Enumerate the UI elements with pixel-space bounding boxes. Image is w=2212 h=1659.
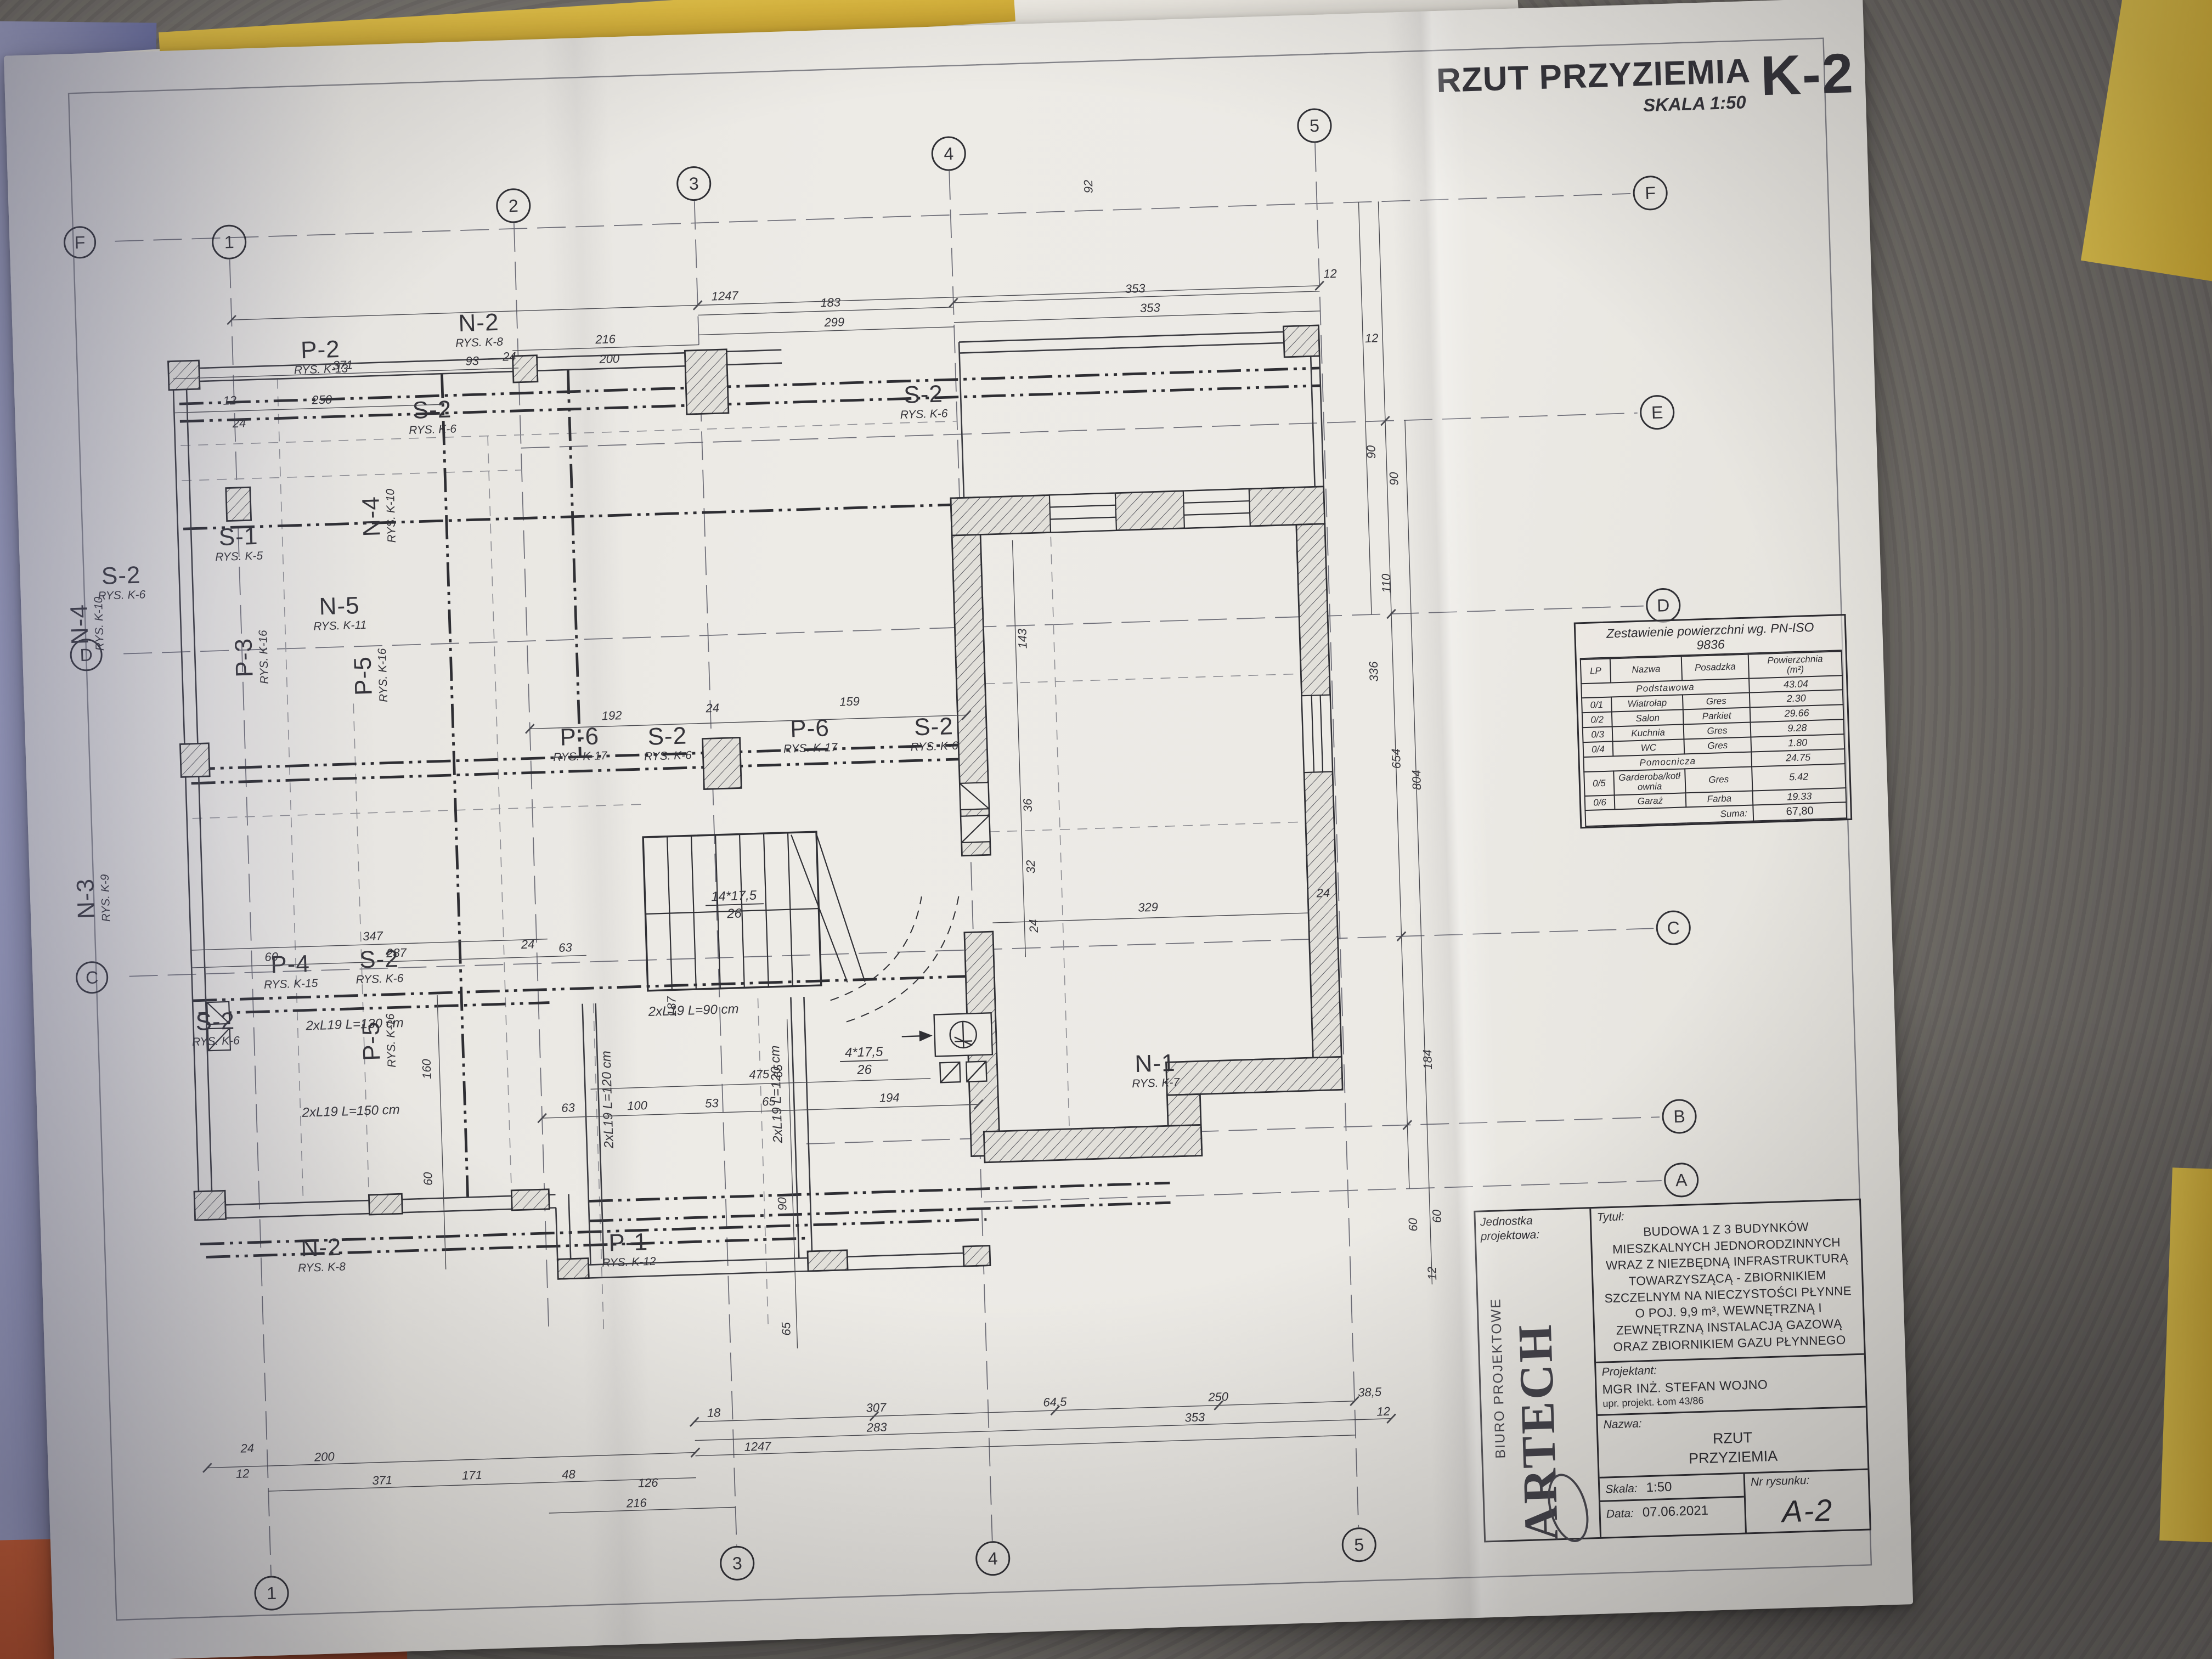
walls-hatched: [168, 325, 1347, 1290]
svg-text:353: 353: [1184, 1410, 1205, 1424]
svg-text:F: F: [74, 232, 86, 252]
svg-text:475: 475: [749, 1067, 770, 1081]
svg-text:4: 4: [988, 1548, 998, 1568]
svg-text:RYS. K-6: RYS. K-6: [644, 749, 692, 763]
title-block-nr-cell: Nr rysunku: A-2: [1745, 1470, 1870, 1532]
svg-text:1247: 1247: [744, 1439, 771, 1454]
svg-text:48: 48: [562, 1467, 576, 1481]
svg-text:183: 183: [820, 295, 841, 309]
lintel-labels: 2xL19 L=130 cm 2xL19 L=90 cm 2xL19 L=150…: [298, 1000, 786, 1159]
jednostka-label: Jednostka projektowa:: [1475, 1209, 1590, 1248]
title-block: Jednostka projektowa: BIURO PROJEKTOWE A…: [1474, 1199, 1871, 1543]
svg-text:18: 18: [707, 1406, 721, 1420]
svg-text:353: 353: [1140, 301, 1161, 315]
svg-text:250: 250: [311, 392, 332, 407]
svg-text:D: D: [80, 645, 93, 665]
svg-text:12: 12: [1365, 331, 1379, 346]
svg-text:24: 24: [240, 1441, 254, 1455]
svg-text:63: 63: [561, 1101, 575, 1115]
svg-text:654: 654: [1389, 748, 1403, 769]
svg-text:24: 24: [1026, 919, 1041, 933]
svg-text:60: 60: [421, 1171, 435, 1186]
svg-text:143: 143: [1015, 628, 1030, 649]
svg-text:RYS. K-6: RYS. K-6: [910, 740, 958, 754]
svg-text:126: 126: [637, 1476, 658, 1490]
vent-chimney-symbol: [901, 1013, 994, 1084]
svg-text:63: 63: [558, 940, 573, 955]
svg-text:4: 4: [944, 144, 954, 164]
svg-text:RYS. K-17: RYS. K-17: [553, 749, 608, 764]
svg-text:371: 371: [332, 358, 353, 372]
svg-text:160: 160: [420, 1058, 434, 1079]
svg-text:347: 347: [363, 929, 383, 943]
tytul-text: BUDOWA 1 Z 3 BUDYNKÓW MIESZKALNYCH JEDNO…: [1597, 1217, 1858, 1356]
svg-text:90: 90: [1387, 471, 1401, 486]
svg-text:32: 32: [1024, 860, 1038, 873]
svg-text:2xL19 L=130 cm: 2xL19 L=130 cm: [305, 1015, 404, 1034]
svg-text:N-1: N-1: [1135, 1049, 1176, 1077]
svg-text:38,5: 38,5: [1358, 1385, 1382, 1399]
svg-text:RYS. K-6: RYS. K-6: [409, 422, 457, 437]
title-block-data-cell: Data: 07.06.2021: [1600, 1497, 1745, 1526]
svg-text:RYS. K-8: RYS. K-8: [298, 1260, 346, 1274]
svg-text:329: 329: [1138, 900, 1158, 915]
svg-text:12: 12: [1323, 267, 1337, 281]
title-block-projektant-cell: Projektant: MGR INŻ. STEFAN WOJNO upr. p…: [1596, 1355, 1866, 1415]
grid-bubbles-top: [210, 109, 1334, 259]
svg-text:1: 1: [267, 1583, 277, 1604]
svg-text:S-2: S-2: [914, 713, 954, 741]
sheet-code: K-2: [1760, 48, 1855, 101]
svg-text:RYS. K-6: RYS. K-6: [192, 1034, 240, 1048]
svg-text:36: 36: [1020, 798, 1035, 812]
svg-text:65: 65: [771, 1064, 785, 1078]
svg-text:N-4: N-4: [65, 603, 93, 645]
tytul-label: Tytuł:: [1596, 1210, 1624, 1224]
title-block-tytul-cell: Tytuł: BUDOWA 1 Z 3 BUDYNKÓW MIESZKALNYC…: [1591, 1200, 1864, 1363]
svg-text:92: 92: [1081, 179, 1096, 193]
skala-label: Skala:: [1605, 1482, 1638, 1496]
svg-text:3: 3: [689, 173, 699, 194]
svg-text:24: 24: [232, 416, 246, 430]
svg-text:P-1: P-1: [608, 1228, 648, 1256]
svg-text:93: 93: [465, 354, 479, 368]
title-block-designer-cell: Jednostka projektowa: BIURO PROJEKTOWE A…: [1475, 1209, 1601, 1541]
svg-text:24: 24: [521, 937, 535, 951]
svg-text:53: 53: [705, 1096, 719, 1110]
svg-text:353: 353: [1125, 281, 1145, 296]
svg-text:RYS. K-6: RYS. K-6: [356, 972, 404, 986]
svg-text:216: 216: [595, 332, 616, 346]
svg-text:90: 90: [1364, 445, 1378, 459]
svg-text:S-2: S-2: [101, 562, 141, 590]
svg-text:P-6: P-6: [790, 714, 830, 742]
svg-text:192: 192: [601, 708, 622, 723]
title-block-nazwa-cell: Nazwa: RZUT PRZYZIEMIA: [1598, 1407, 1867, 1478]
svg-text:26: 26: [726, 906, 742, 921]
yellow-page-edge-right: [2081, 0, 2212, 284]
svg-text:S-1: S-1: [218, 523, 258, 551]
svg-text:S-2: S-2: [904, 381, 944, 409]
svg-text:194: 194: [879, 1091, 900, 1105]
svg-text:12: 12: [1376, 1404, 1390, 1419]
svg-text:12: 12: [223, 393, 236, 408]
svg-text:371: 371: [372, 1473, 392, 1487]
stairs: [643, 827, 963, 1028]
svg-text:200: 200: [599, 352, 620, 366]
svg-text:A: A: [1675, 1170, 1688, 1190]
svg-text:2: 2: [508, 196, 518, 216]
nazwa-label: Nazwa:: [1603, 1417, 1642, 1431]
drawing-sheet: 1 2 3 4 5 1 3 4 5 F E: [4, 0, 1913, 1659]
svg-text:5: 5: [1354, 1534, 1364, 1555]
svg-text:216: 216: [625, 1496, 647, 1510]
grid-bubble-labels-bottom: 1 3 4 5: [266, 1533, 1365, 1603]
svg-text:B: B: [1673, 1107, 1685, 1127]
artech-logo: BIURO PROJEKTOWE ARTECH: [1478, 1291, 1600, 1552]
nr-value: A-2: [1751, 1491, 1864, 1530]
nr-label: Nr rysunku:: [1751, 1474, 1810, 1488]
svg-text:64,5: 64,5: [1043, 1395, 1067, 1409]
svg-text:184: 184: [1420, 1049, 1435, 1070]
svg-text:N-3: N-3: [72, 878, 100, 919]
svg-text:RYS. K-9: RYS. K-9: [99, 874, 113, 922]
svg-text:2xL19 L=150 cm: 2xL19 L=150 cm: [301, 1102, 400, 1120]
svg-text:283: 283: [866, 1420, 887, 1435]
nazwa-value: RZUT PRZYZIEMIA: [1604, 1424, 1862, 1471]
svg-text:RYS. K-6: RYS. K-6: [900, 407, 948, 421]
svg-text:307: 307: [866, 1401, 887, 1415]
svg-text:N-2: N-2: [301, 1234, 342, 1262]
svg-text:D: D: [1657, 595, 1670, 616]
svg-text:RYS. K-8: RYS. K-8: [455, 336, 504, 350]
logo-line1: BIURO PROJEKTOWE: [1488, 1298, 1509, 1459]
svg-text:N-4: N-4: [357, 496, 385, 537]
data-label: Data:: [1606, 1507, 1634, 1521]
svg-text:RYS. K-15: RYS. K-15: [264, 977, 318, 991]
svg-text:F: F: [1645, 183, 1656, 204]
svg-text:65: 65: [762, 1094, 776, 1109]
svg-text:S-2: S-2: [195, 1008, 235, 1036]
svg-text:RYS. K-5: RYS. K-5: [215, 550, 263, 564]
svg-text:24: 24: [705, 701, 719, 715]
svg-text:171: 171: [462, 1468, 482, 1482]
svg-text:4*17,5: 4*17,5: [845, 1045, 884, 1060]
photo-scene: 1 2 3 4 5 1 3 4 5 F E: [0, 0, 2212, 1659]
svg-text:14*17,5: 14*17,5: [711, 888, 757, 905]
svg-text:RYS. K-6: RYS. K-6: [98, 588, 146, 602]
svg-text:90: 90: [775, 1197, 789, 1211]
grid-bubble-labels-top: 1 2 3 4 5: [222, 116, 1323, 252]
svg-text:5: 5: [1310, 116, 1320, 136]
svg-text:1247: 1247: [711, 289, 738, 303]
yellow-page-edge-right-lower: [2159, 1167, 2212, 1542]
svg-text:60: 60: [1406, 1217, 1420, 1232]
svg-text:299: 299: [823, 315, 844, 329]
svg-text:200: 200: [314, 1449, 335, 1464]
svg-text:RYS. K-10: RYS. K-10: [384, 488, 398, 543]
svg-text:RYS. K-7: RYS. K-7: [1132, 1076, 1181, 1091]
svg-text:12: 12: [1425, 1267, 1439, 1280]
svg-text:287: 287: [386, 946, 407, 960]
svg-text:26: 26: [856, 1062, 872, 1077]
svg-text:159: 159: [839, 695, 860, 709]
svg-text:65: 65: [779, 1322, 793, 1336]
svg-text:60: 60: [1430, 1209, 1444, 1223]
svg-text:N-5: N-5: [319, 592, 360, 620]
svg-text:N-2: N-2: [458, 309, 499, 337]
svg-text:RYS. K-10: RYS. K-10: [92, 596, 106, 651]
svg-text:E: E: [1651, 402, 1663, 422]
data-value: 07.06.2021: [1642, 1503, 1708, 1520]
svg-text:3: 3: [732, 1553, 742, 1573]
skala-value: 1:50: [1646, 1479, 1672, 1495]
svg-text:1: 1: [224, 232, 234, 252]
svg-text:2xL19 L=90 cm: 2xL19 L=90 cm: [647, 1002, 739, 1019]
svg-text:2xL19 L=120 cm: 2xL19 L=120 cm: [599, 1051, 617, 1149]
svg-text:250: 250: [1207, 1390, 1229, 1404]
svg-text:P-3: P-3: [230, 637, 258, 678]
svg-text:110: 110: [1379, 573, 1393, 594]
svg-text:24: 24: [502, 349, 516, 364]
svg-text:100: 100: [627, 1098, 648, 1113]
svg-text:C: C: [1667, 918, 1680, 938]
svg-text:S-2: S-2: [412, 396, 452, 424]
svg-text:RYS. K-11: RYS. K-11: [313, 619, 367, 633]
svg-text:336: 336: [1367, 661, 1381, 682]
area-table: Zestawienie powierzchni wg. PN-ISO9836 L…: [1574, 614, 1853, 829]
svg-text:804: 804: [1409, 770, 1424, 790]
svg-text:RYS. K-12: RYS. K-12: [602, 1255, 656, 1269]
svg-text:24: 24: [1316, 886, 1330, 900]
svg-text:RYS. K-17: RYS. K-17: [783, 741, 838, 755]
svg-text:P-5: P-5: [349, 656, 377, 696]
svg-text:S-2: S-2: [647, 722, 687, 750]
svg-text:60: 60: [264, 950, 279, 964]
projektant-label: Projektant:: [1601, 1364, 1657, 1378]
svg-text:C: C: [86, 967, 99, 988]
svg-text:12: 12: [236, 1466, 250, 1481]
svg-text:RYS. K-16: RYS. K-16: [257, 630, 271, 684]
svg-text:RYS. K-16: RYS. K-16: [376, 648, 390, 702]
svg-text:187: 187: [664, 996, 679, 1017]
